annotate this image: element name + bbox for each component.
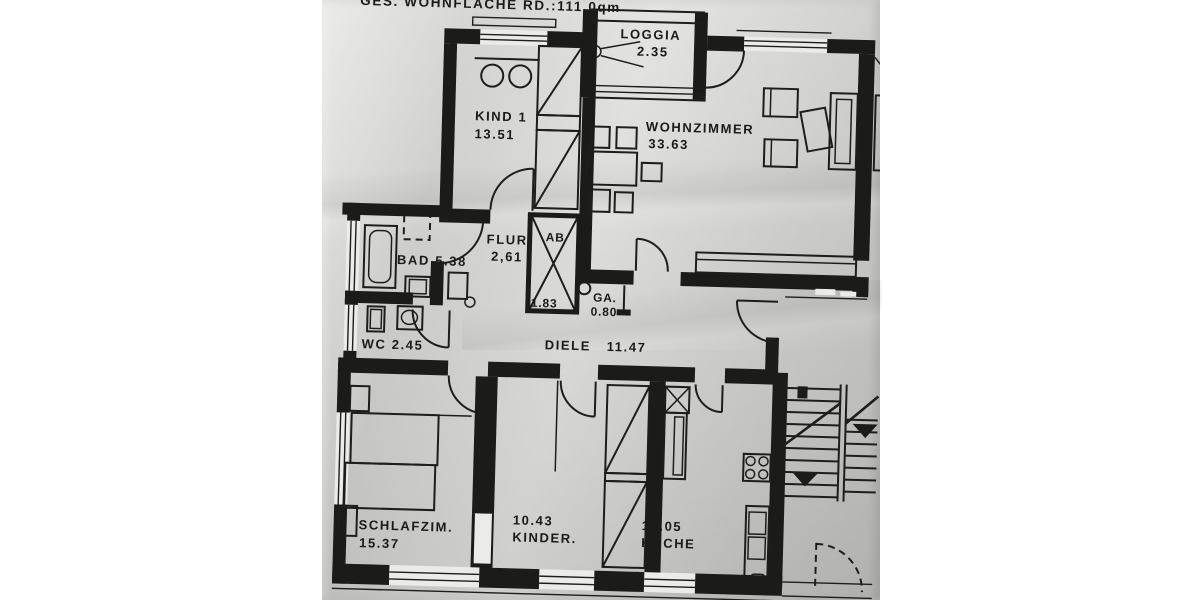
bathtub <box>363 225 397 288</box>
label-kueche-name: KUCHE <box>641 535 696 552</box>
kitchen-counter <box>744 506 769 583</box>
label-schlafzimmer-name: SCHLAFZIM. <box>358 517 453 535</box>
floorplan-drawing: GES. WOHNFLACHE RD.:111.0qm <box>322 0 880 600</box>
landing-door <box>815 543 816 591</box>
landing-door-arc <box>815 544 863 592</box>
entrance-door-arc <box>736 301 778 343</box>
bed <box>350 413 438 465</box>
room-loggia: LOGGIA 2.35 <box>581 9 708 100</box>
label-diele-name: DIELE <box>545 337 592 353</box>
label-ga-name: GA. <box>593 291 617 306</box>
desk <box>475 58 540 60</box>
total-area-label: GES. WOHNFLACHE RD.:111.0qm <box>360 0 621 15</box>
wardrobe <box>535 46 583 209</box>
sofa <box>829 93 858 170</box>
label-ab-name: AB <box>546 230 565 245</box>
label-flur-name: FLUR <box>486 232 527 248</box>
door-arc <box>560 381 596 417</box>
label-bad: BAD 5.38 <box>397 252 467 269</box>
label-kind1-area: 13.51 <box>474 126 515 142</box>
label-flur-area: 2,61 <box>491 249 523 265</box>
label-wohnzimmer-name: WOHNZIMMER <box>646 119 755 137</box>
stairwell <box>775 297 880 599</box>
floorplan-photo-page: GES. WOHNFLACHE RD.:111.0qm <box>0 0 1200 600</box>
nightstand <box>350 386 370 412</box>
label-schlafzimmer-area: 15.37 <box>359 535 400 551</box>
room-wohnzimmer: WOHNZIMMER 33.63 <box>577 26 880 297</box>
label-kueche-area: 10.05 <box>642 518 683 534</box>
vent-shaft <box>665 387 690 414</box>
sideboard <box>696 252 856 276</box>
label-loggia-name: LOGGIA <box>620 26 681 43</box>
door-arc <box>706 50 744 89</box>
label-ga-area: 0.80 <box>590 304 617 319</box>
room-schlafzimmer: SCHLAFZIM. 15.37 <box>332 362 486 587</box>
label-loggia-area: 2.35 <box>637 44 669 60</box>
label-wc: WC 2.45 <box>361 336 423 353</box>
door-arc <box>490 168 533 211</box>
label-kinderzimmer-name: KINDER. <box>512 529 577 546</box>
ab-shaft: AB 1.83 <box>528 215 580 312</box>
chair-icon <box>481 64 504 87</box>
seating-group <box>762 88 858 170</box>
room-wc: WC 2.45 <box>343 305 450 366</box>
door-arc <box>695 384 723 412</box>
label-kind1-name: KIND 1 <box>475 108 528 124</box>
toilet <box>448 272 468 299</box>
label-diele-area: 11.47 <box>606 339 646 355</box>
room-kinderzimmer: 10.43 KINDER. <box>470 376 665 574</box>
ga-niche: GA. 0.80 <box>577 282 631 319</box>
door-arc <box>636 239 669 272</box>
coffee-table <box>800 108 832 152</box>
room-kind1: KIND 1 13.51 <box>439 16 591 226</box>
stove <box>743 454 771 482</box>
floorplan-paper: GES. WOHNFLACHE RD.:111.0qm <box>322 0 880 600</box>
bed <box>344 463 435 510</box>
neighbour-sofa <box>874 95 880 170</box>
label-wohnzimmer-area: 33.63 <box>648 136 689 152</box>
area-flur: FLUR 2,61 AB 1.83 GA. <box>485 214 634 320</box>
label-ab-area: 1.83 <box>531 296 558 311</box>
label-kinderzimmer-area: 10.43 <box>513 512 554 528</box>
chair-icon <box>509 65 532 88</box>
